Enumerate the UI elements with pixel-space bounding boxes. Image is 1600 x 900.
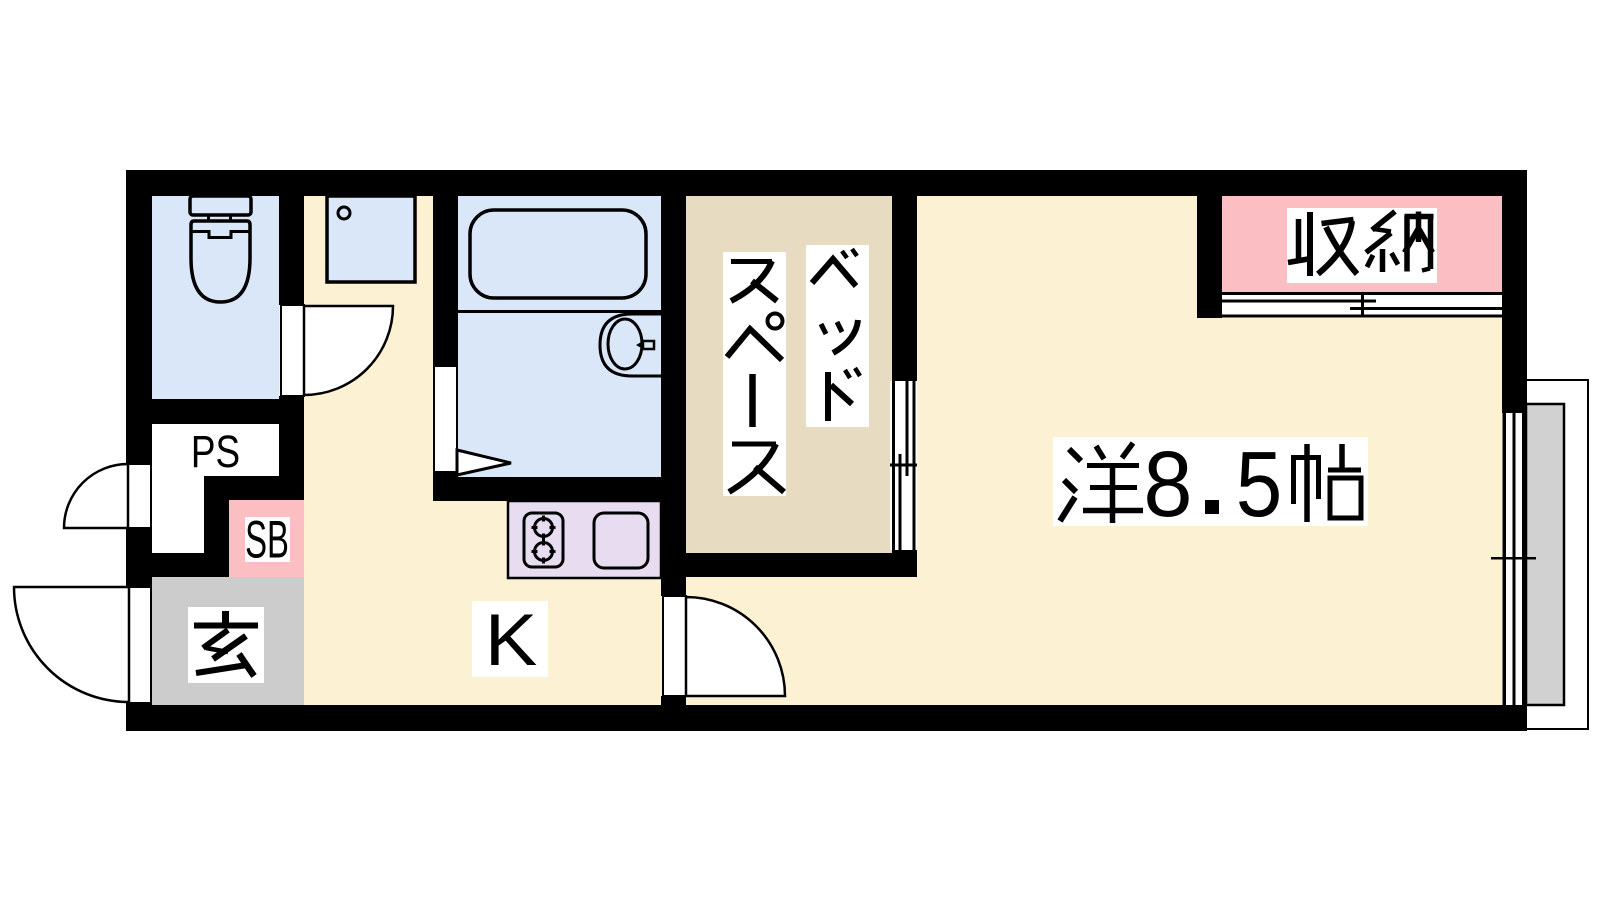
svg-text:PS: PS xyxy=(191,427,240,477)
svg-text:8: 8 xyxy=(1143,433,1192,537)
svg-text:5: 5 xyxy=(1236,432,1283,536)
svg-text:K: K xyxy=(485,600,538,682)
svg-text:SB: SB xyxy=(245,511,289,570)
